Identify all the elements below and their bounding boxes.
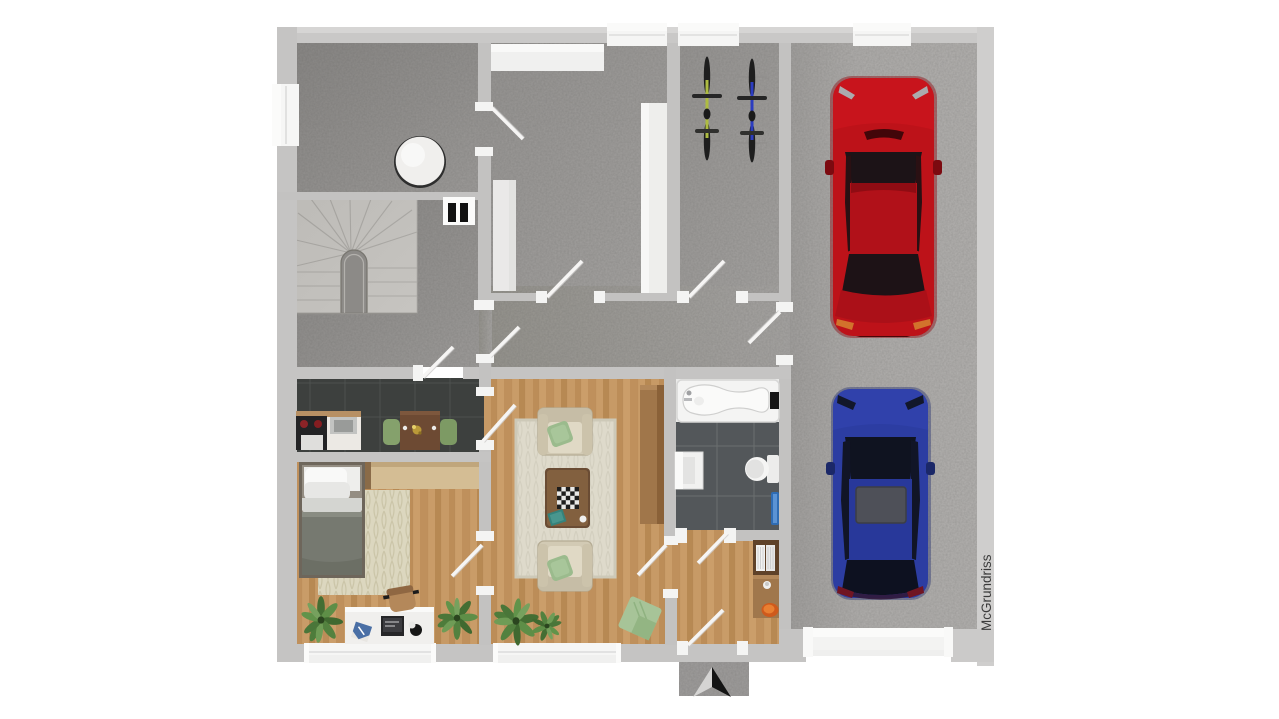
svg-text:McGrundriss: McGrundriss [979, 554, 994, 631]
